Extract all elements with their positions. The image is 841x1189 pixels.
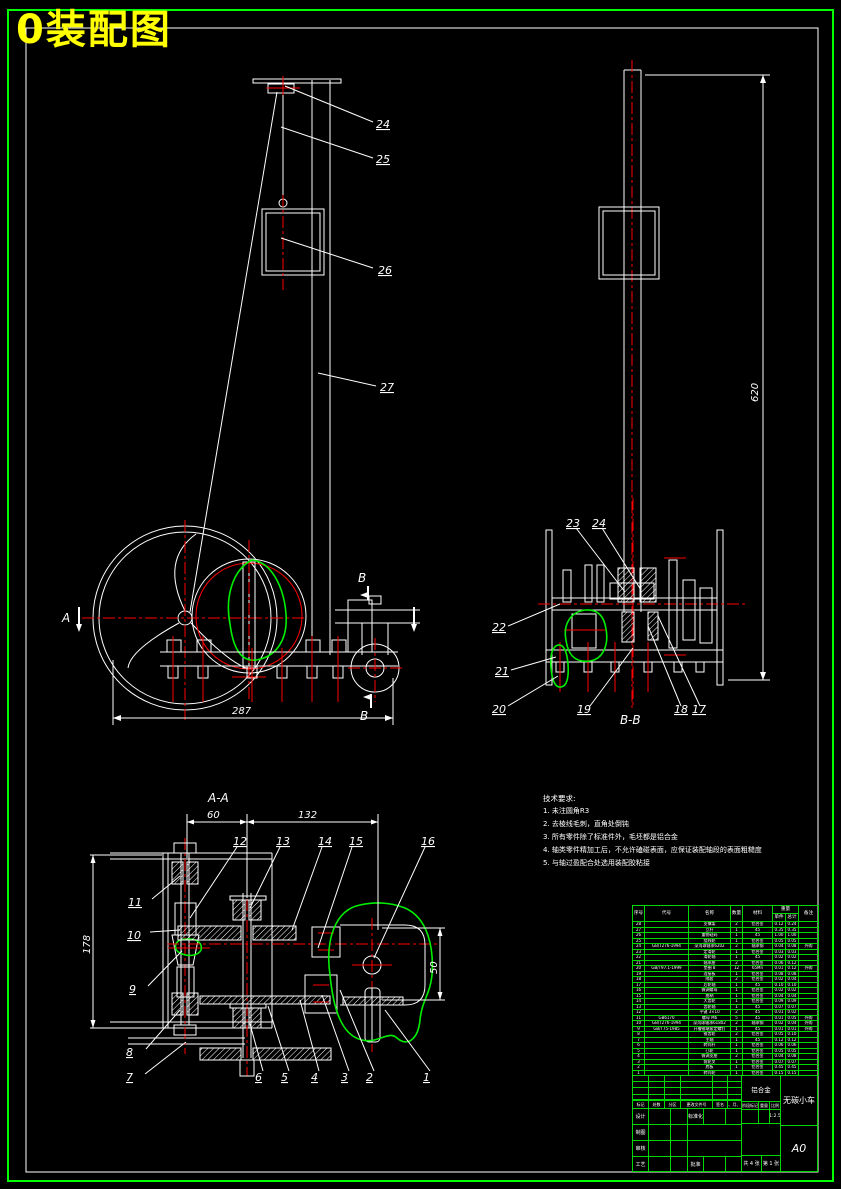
- section-caption-aa: A-A: [207, 791, 229, 805]
- dim-620: 620: [750, 383, 761, 402]
- note-line: 3. 所有零件除了标准件外，毛坯都是铝合金: [543, 831, 818, 844]
- part-label-26: 26: [378, 264, 392, 277]
- drawing-canvas: 24 25 26 27 A B B 287 620: [0, 0, 841, 1189]
- tb-sheets: 共 4 张: [741, 1155, 762, 1172]
- dim-60: 60: [207, 810, 220, 821]
- part-label-17: 17: [692, 703, 706, 716]
- part-label-1: 1: [423, 1071, 430, 1084]
- tb-material: 铝合金: [741, 1075, 781, 1102]
- side-view: 620: [599, 60, 770, 708]
- tb-label-standard: 标准化: [687, 1108, 704, 1125]
- dim-287: 287: [232, 706, 252, 717]
- bom-header-no: 序号: [633, 906, 645, 922]
- bom-header-name: 名称: [689, 906, 731, 922]
- note-line: 2. 去棱线毛刺，直角处倒钝: [543, 818, 818, 831]
- highlight-cone: [176, 939, 202, 955]
- bom-header-note: 备注: [799, 906, 819, 922]
- bom-table: 28 支撑架 2 铝合金 0.12 0.24 27 立杆 1: [632, 905, 818, 1075]
- dim-50: 50: [429, 961, 440, 974]
- section-aa: A-A: [82, 791, 445, 1084]
- part-label-21: 21: [495, 665, 509, 678]
- part-label-2: 2: [366, 1071, 373, 1084]
- section-mark-b-bottom: B: [360, 709, 368, 723]
- part-label-5: 5: [281, 1071, 288, 1084]
- note-line: 5. 与轴过盈配合处选用装配胶粘接: [543, 857, 818, 870]
- part-label-18: 18: [674, 703, 688, 716]
- page-title: 0装配图: [16, 8, 172, 52]
- part-label-4: 4: [311, 1071, 318, 1084]
- part-label-25: 25: [376, 153, 390, 166]
- title-block: 标记 处数 分区 更改文件号 签名 年、月、日 设计 标准化 制图 审核 工艺 …: [632, 1075, 818, 1172]
- part-label-19: 19: [577, 703, 591, 716]
- bom-header-code: 代号: [645, 906, 689, 922]
- section-caption-bb: B-B: [620, 713, 641, 727]
- bom-header-unit: 单件: [773, 914, 786, 922]
- tb-sheet-no: 第 1 张: [761, 1155, 781, 1172]
- section-bb: 23 24 22 21 20 19 18 17 B-B: [492, 498, 748, 727]
- tb-label-draw: 制图: [632, 1124, 649, 1141]
- tb-product-name: 无碳小车: [780, 1075, 818, 1126]
- part-label-12: 12: [233, 835, 247, 848]
- part-label-24b: 24: [592, 517, 606, 530]
- part-label-14: 14: [318, 835, 332, 848]
- tb-label-check: 审核: [632, 1140, 649, 1157]
- part-label-6: 6: [255, 1071, 262, 1084]
- bom-header-material: 材料: [743, 906, 773, 922]
- section-mark-b-top: B: [358, 571, 366, 585]
- tb-label-approve: 批准: [687, 1156, 704, 1172]
- bom-header-weight: 重量: [773, 906, 799, 914]
- highlight-wheel: [329, 903, 433, 1042]
- notes-title: 技术要求:: [543, 792, 818, 805]
- notes-list: 1. 未注圆角R32. 去棱线毛刺，直角处倒钝3. 所有零件除了标准件外，毛坯都…: [543, 805, 818, 870]
- part-label-16: 16: [421, 835, 435, 848]
- bom-row: 10 GB/T276-1994 深沟球轴承61802 2 轴承钢 0.02 0.…: [633, 1021, 819, 1027]
- part-label-27: 27: [380, 381, 394, 394]
- tb-label-design: 设计: [632, 1108, 649, 1125]
- part-label-15: 15: [349, 835, 363, 848]
- bom-header-qty: 数量: [731, 906, 743, 922]
- note-line: 1. 未注圆角R3: [543, 805, 818, 818]
- part-label-8: 8: [126, 1046, 133, 1059]
- dim-178: 178: [82, 935, 93, 954]
- section-mark-a: A: [61, 611, 70, 625]
- part-label-24: 24: [376, 118, 390, 131]
- tb-label-process: 工艺: [632, 1156, 649, 1172]
- part-label-13: 13: [276, 835, 290, 848]
- front-view: 24 25 26 27 A B B 287: [61, 76, 420, 725]
- part-label-11: 11: [128, 896, 142, 909]
- note-line: 4. 轴类零件精加工后，不允许磕碰表面，应保证装配轴段的表面粗糙度: [543, 844, 818, 857]
- part-label-3: 3: [341, 1071, 348, 1084]
- bom-header-row: 序号 代号 名称 数量 材料 重量 备注: [633, 906, 819, 914]
- highlight-crank: [228, 560, 286, 660]
- tb-sheet-size: A0: [780, 1125, 818, 1172]
- dim-132: 132: [298, 810, 317, 821]
- part-label-7: 7: [126, 1071, 133, 1084]
- part-label-10: 10: [127, 929, 141, 942]
- part-label-9: 9: [129, 983, 136, 996]
- part-label-20: 20: [492, 703, 506, 716]
- technical-notes: 技术要求: 1. 未注圆角R32. 去棱线毛刺，直角处倒钝3. 所有零件除了标准…: [543, 792, 818, 870]
- bom-header-total: 总计: [786, 914, 799, 922]
- part-label-23: 23: [566, 517, 580, 530]
- part-label-22: 22: [492, 621, 506, 634]
